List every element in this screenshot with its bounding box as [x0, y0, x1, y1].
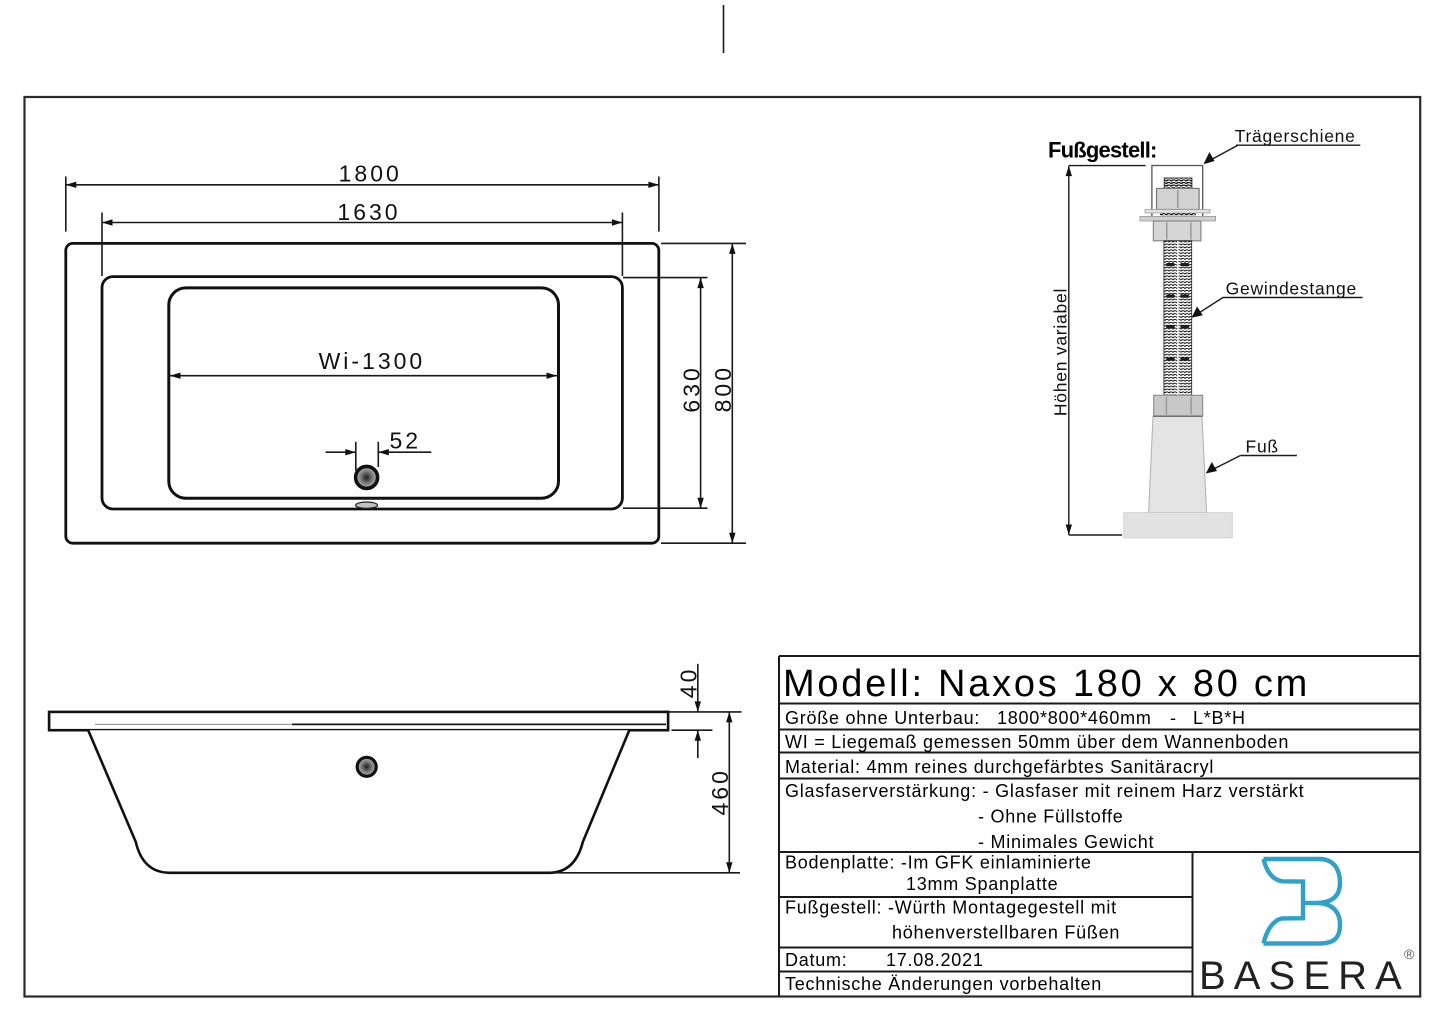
svg-text:Fuß: Fuß [1246, 437, 1279, 457]
svg-text:Modell: Naxos 180 x 80 cm: Modell: Naxos 180 x 80 cm [783, 663, 1310, 705]
svg-text:Datum:: Datum: [785, 950, 848, 970]
svg-text:1800*800*460mm: 1800*800*460mm [997, 708, 1152, 728]
svg-text:Fußgestell: -Würth Montagegest: Fußgestell: -Würth Montagegestell mit [785, 898, 1117, 918]
svg-text:L*B*H: L*B*H [1193, 708, 1246, 728]
svg-text:Wi-1300: Wi-1300 [319, 348, 426, 374]
svg-text:Höhen variabel: Höhen variabel [1051, 288, 1071, 416]
svg-text:- Minimales Gewicht: - Minimales Gewicht [978, 832, 1154, 852]
svg-text:52: 52 [390, 428, 422, 454]
svg-text:BASERA: BASERA [1199, 954, 1410, 998]
svg-text:Bodenplatte: -Im GFK einlamini: Bodenplatte: -Im GFK einlaminierte [785, 853, 1092, 873]
svg-text:1630: 1630 [337, 199, 400, 225]
svg-text:-: - [1170, 708, 1177, 728]
svg-text:Trägerschiene: Trägerschiene [1235, 126, 1356, 146]
svg-text:800: 800 [710, 365, 736, 412]
svg-text:13mm Spanplatte: 13mm Spanplatte [906, 874, 1058, 894]
svg-text:- Ohne Füllstoffe: - Ohne Füllstoffe [978, 807, 1123, 827]
svg-text:17.08.2021: 17.08.2021 [886, 950, 984, 970]
svg-text:1800: 1800 [339, 161, 402, 187]
svg-text:Glasfaserverstärkung: - Glasf: Glasfaserverstärkung: - Glasfaser mit re… [785, 781, 1304, 801]
svg-text:460: 460 [707, 768, 733, 815]
svg-text:Gewindestange: Gewindestange [1226, 279, 1357, 299]
svg-text:Größe ohne Unterbau:: Größe ohne Unterbau: [785, 708, 980, 728]
svg-text:WI = Liegemaß gemessen 50mm üb: WI = Liegemaß gemessen 50mm über dem Wan… [785, 732, 1289, 752]
svg-text:Technische Änderungen vorbehal: Technische Änderungen vorbehalten [785, 974, 1102, 994]
svg-text:höhenverstellbaren Füßen: höhenverstellbaren Füßen [892, 923, 1120, 943]
svg-text:Material: 4mm reines durchgefä: Material: 4mm reines durchgefärbtes Sani… [785, 757, 1214, 777]
svg-text:40: 40 [676, 667, 702, 699]
svg-text:Fußgestell:: Fußgestell: [1048, 138, 1157, 163]
svg-text:®: ® [1404, 946, 1415, 962]
svg-text:630: 630 [678, 365, 704, 412]
